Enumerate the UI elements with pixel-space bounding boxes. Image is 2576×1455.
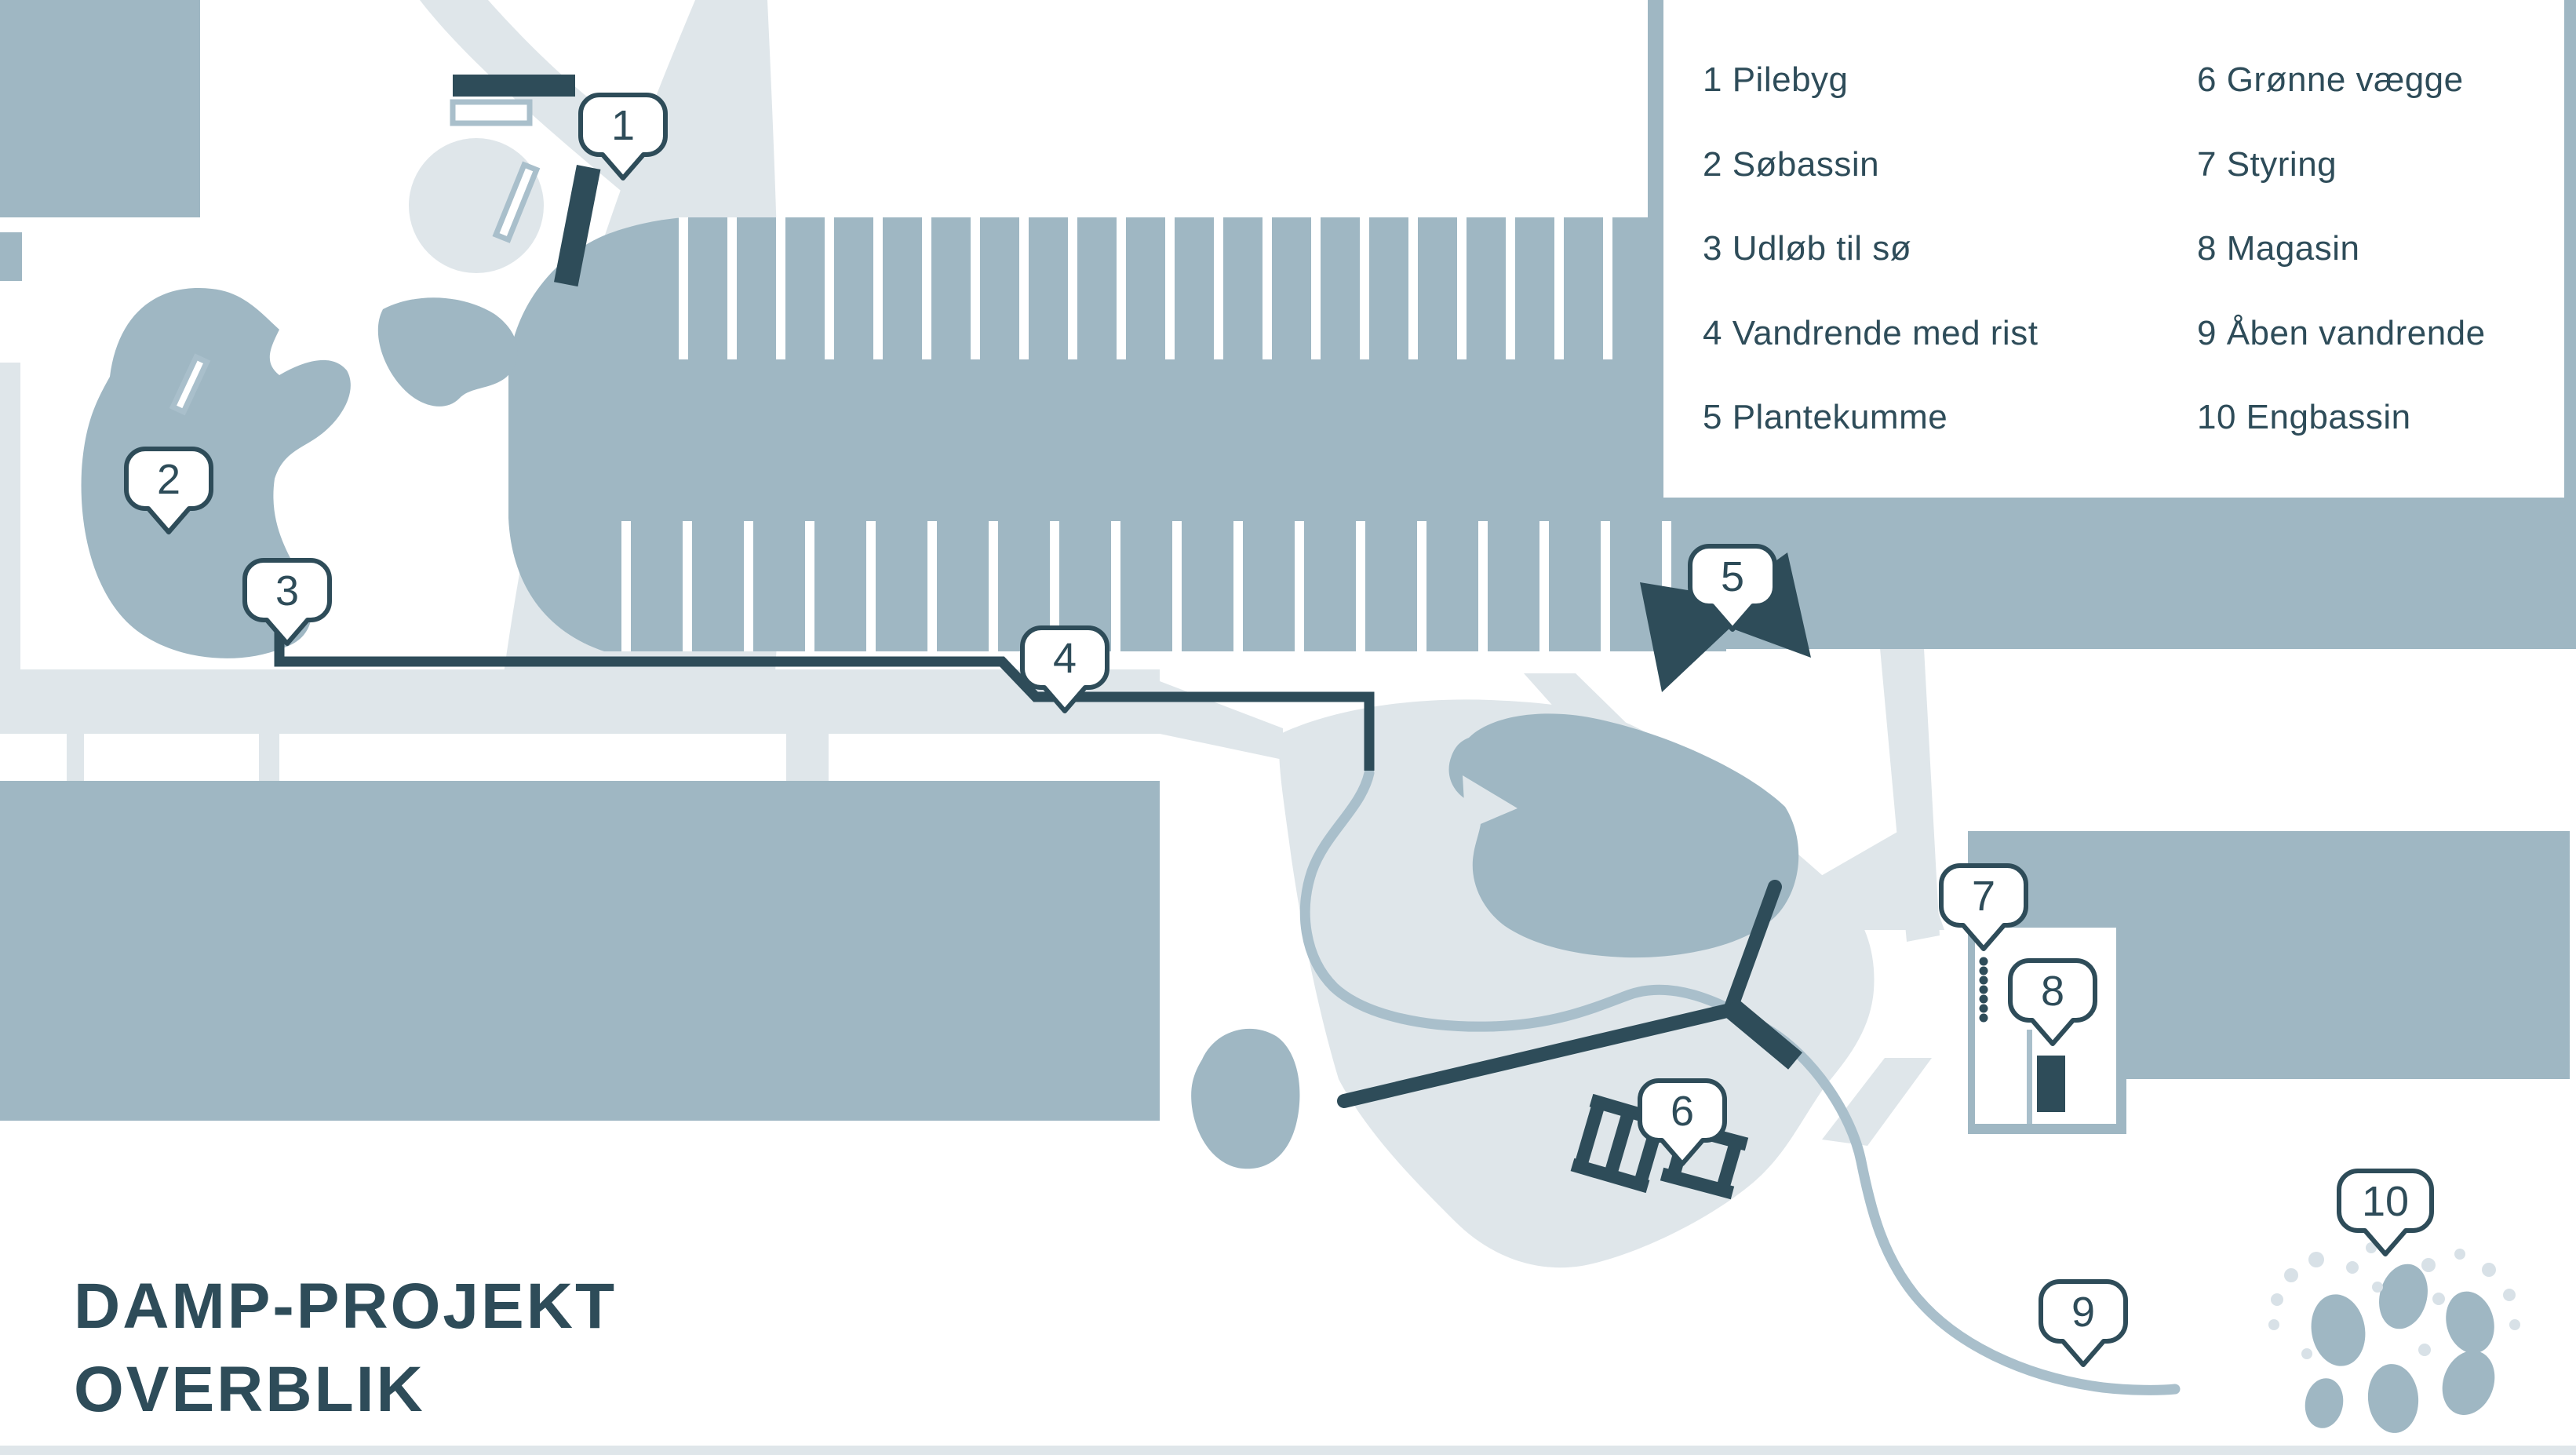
marker-number: 8 bbox=[2041, 968, 2064, 1015]
parking-stripe bbox=[1233, 521, 1243, 651]
marker-balloon-9[interactable]: 9 bbox=[2041, 1282, 2126, 1365]
parking-stripe bbox=[727, 217, 737, 359]
parking-stripe bbox=[1601, 521, 1610, 651]
parking-stripe bbox=[776, 217, 785, 359]
marker-number: 9 bbox=[2071, 1289, 2095, 1336]
parking-stripe bbox=[1019, 217, 1029, 359]
marker-number: 7 bbox=[1972, 873, 1995, 920]
parking-stripe bbox=[1478, 521, 1488, 651]
legend-item: 9 Åben vandrende bbox=[2197, 291, 2486, 376]
legend-item: 2 Søbassin bbox=[1703, 122, 2038, 207]
parking-stripe bbox=[989, 521, 998, 651]
parking-stripe bbox=[922, 217, 931, 359]
small-pond-northeast bbox=[378, 297, 518, 407]
parking-stripe bbox=[683, 521, 692, 651]
parking-stripe bbox=[971, 217, 980, 359]
block-bottom-left bbox=[0, 781, 1160, 1121]
parking-stripe bbox=[1506, 217, 1515, 359]
parking-stripe bbox=[1172, 521, 1182, 651]
parking-stripe bbox=[621, 521, 631, 651]
marker-number: 4 bbox=[1053, 635, 1077, 682]
legend-item: 5 Plantekumme bbox=[1703, 375, 2038, 460]
marker-number: 3 bbox=[275, 567, 299, 614]
site-map-canvas: 12345678910 bbox=[0, 0, 2576, 1455]
title-line-1: DAMP-PROJEKT bbox=[74, 1265, 617, 1348]
road-left-strip bbox=[0, 363, 20, 673]
parking-stripe bbox=[1262, 217, 1272, 359]
legend-item: 6 Grønne vægge bbox=[2197, 38, 2486, 122]
legend-item: 10 Engbassin bbox=[2197, 375, 2486, 460]
marker-number: 10 bbox=[2362, 1178, 2409, 1225]
legend-item: 7 Styring bbox=[2197, 122, 2486, 207]
parking-stripe bbox=[1068, 217, 1077, 359]
pilebyg-dark-building bbox=[453, 75, 575, 97]
marker-balloon-10[interactable]: 10 bbox=[2339, 1171, 2432, 1254]
legend-column-1: 1 Pilebyg2 Søbassin3 Udløb til sø4 Vandr… bbox=[1703, 38, 2038, 460]
parking-stripe bbox=[1214, 217, 1223, 359]
damp-project-overview-map: 12345678910 1 Pilebyg2 Søbassin3 Udløb t… bbox=[0, 0, 2576, 1455]
legend-column-2: 6 Grønne vægge7 Styring8 Magasin9 Åben v… bbox=[2197, 38, 2486, 460]
parking-stripe bbox=[1408, 217, 1418, 359]
title-line-2: OVERBLIK bbox=[74, 1348, 617, 1431]
legend-item: 8 Magasin bbox=[2197, 206, 2486, 291]
central-pond bbox=[1449, 713, 1799, 957]
parking-stripe bbox=[1117, 217, 1126, 359]
road-bottom-strip bbox=[0, 1446, 2576, 1455]
parking-stripe bbox=[1295, 521, 1304, 651]
engbassin-cluster bbox=[2268, 1242, 2520, 1435]
road-stub-3 bbox=[786, 730, 829, 785]
engbassin-basins bbox=[2301, 1259, 2504, 1435]
pilebyg-outlined-bed bbox=[453, 102, 530, 123]
parking-stripe bbox=[873, 217, 883, 359]
parking-stripe bbox=[805, 521, 814, 651]
parking-stripe bbox=[679, 217, 688, 359]
road-stub-1 bbox=[67, 730, 84, 785]
legend-item: 4 Vandrende med rist bbox=[1703, 291, 2038, 376]
marker-number: 1 bbox=[611, 102, 635, 149]
parking-stripe bbox=[1356, 521, 1365, 651]
block-left-edge-tab bbox=[0, 232, 22, 281]
parking-stripe bbox=[1360, 217, 1369, 359]
magasin-dark-unit bbox=[2037, 1056, 2065, 1112]
legend-item: 3 Udløb til sø bbox=[1703, 206, 2038, 291]
parking-stripe bbox=[1603, 217, 1612, 359]
parking-stripe bbox=[825, 217, 834, 359]
road-horizontal-band bbox=[0, 669, 1160, 734]
parking-stripe bbox=[866, 521, 876, 651]
marker-number: 2 bbox=[157, 456, 180, 503]
parking-stripe bbox=[1111, 521, 1120, 651]
parking-stripe bbox=[927, 521, 937, 651]
legend-item: 1 Pilebyg bbox=[1703, 38, 2038, 122]
teardrop-pond bbox=[1191, 1029, 1299, 1169]
parking-stripe bbox=[744, 521, 753, 651]
parking-stripe bbox=[1539, 521, 1549, 651]
parking-stripe bbox=[1457, 217, 1467, 359]
courtyard-light-line bbox=[2027, 1030, 2032, 1124]
parking-stripe bbox=[1311, 217, 1321, 359]
marker-number: 6 bbox=[1671, 1088, 1694, 1135]
marker-number: 5 bbox=[1721, 553, 1744, 600]
page-title: DAMP-PROJEKT OVERBLIK bbox=[74, 1265, 617, 1431]
parking-stripe bbox=[1417, 521, 1426, 651]
parking-stripe bbox=[1554, 217, 1564, 359]
road-stub-2 bbox=[259, 730, 279, 785]
block-top-left bbox=[0, 0, 200, 217]
parking-stripe bbox=[1165, 217, 1175, 359]
